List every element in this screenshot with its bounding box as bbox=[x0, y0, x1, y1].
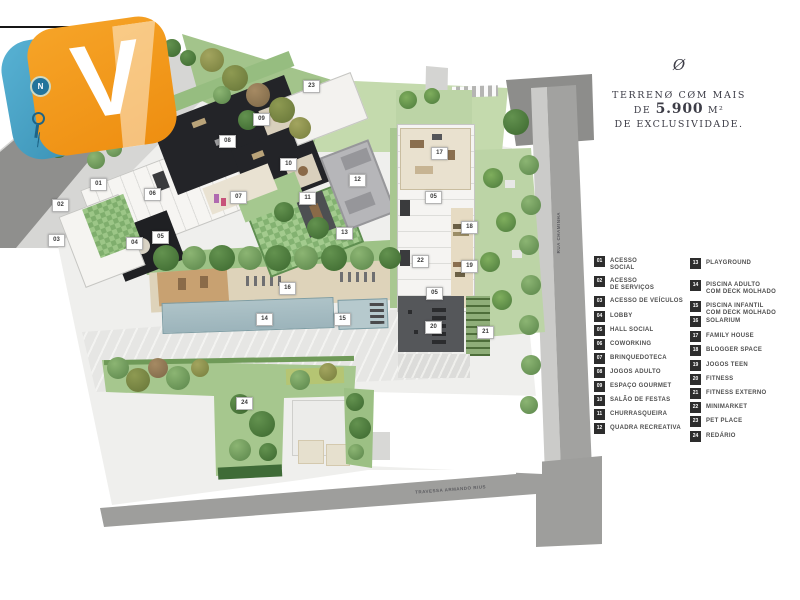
legend-item-07: 07BRINQUEDOTECA bbox=[594, 353, 686, 364]
legend-item-24: 24REDÁRIO bbox=[690, 431, 782, 442]
map-marker-09: 09 bbox=[253, 113, 270, 126]
family-house-furniture bbox=[415, 166, 433, 174]
building-core bbox=[400, 250, 410, 266]
tree bbox=[213, 86, 231, 104]
tree bbox=[519, 235, 539, 255]
legend-label: BRINQUEDOTECA bbox=[610, 353, 667, 362]
tree bbox=[269, 97, 295, 123]
compass-icon: N bbox=[30, 76, 51, 97]
legend-label: JOGOS ADULTO bbox=[610, 367, 661, 376]
tree bbox=[182, 246, 206, 270]
pool-adult bbox=[162, 297, 335, 334]
legend-label: FITNESS EXTERNO bbox=[706, 388, 767, 397]
map-marker-18: 18 bbox=[461, 221, 478, 234]
map-marker-21: 21 bbox=[477, 326, 494, 339]
palm-tree bbox=[496, 212, 516, 232]
legend-label: SALÃO DE FESTAS bbox=[610, 395, 670, 404]
legend-label: ESPAÇO GOURMET bbox=[610, 381, 671, 390]
tree bbox=[200, 48, 224, 72]
legend-item-17: 17FAMILY HOUSE bbox=[690, 331, 782, 342]
walkway-hatched bbox=[398, 354, 470, 378]
legend-number: 12 bbox=[594, 423, 605, 434]
map-marker-11: 11 bbox=[299, 192, 316, 205]
map-marker-03: 03 bbox=[48, 234, 65, 247]
deck-loungers bbox=[340, 272, 380, 282]
site-plan-page: TRAVESSA ARMANDO RIUS RUA CHAMINHA 01 02… bbox=[0, 0, 800, 600]
legend-label: PISCINA INFANTILCOM DECK MOLHADO bbox=[706, 301, 776, 317]
tree bbox=[246, 83, 270, 107]
map-marker-05c: 05 bbox=[426, 287, 443, 300]
tree bbox=[148, 358, 168, 378]
legend-number: 18 bbox=[690, 345, 701, 356]
tree bbox=[290, 370, 310, 390]
tree bbox=[209, 245, 235, 271]
legend-number: 09 bbox=[594, 381, 605, 392]
fitness-equipment bbox=[408, 310, 412, 314]
legend-item-06: 06COWORKING bbox=[594, 339, 686, 350]
map-marker-05a: 05 bbox=[152, 231, 169, 244]
tree bbox=[520, 396, 538, 414]
tree bbox=[519, 315, 539, 335]
legend-label: HALL SOCIAL bbox=[610, 325, 654, 334]
legend-item-13: 13PLAYGROUND bbox=[690, 258, 782, 269]
legend-number: 21 bbox=[690, 388, 701, 399]
legend-number: 20 bbox=[690, 374, 701, 385]
watermark-logo: V N bbox=[6, 16, 178, 164]
tree bbox=[521, 275, 541, 295]
map-marker-04: 04 bbox=[126, 237, 143, 250]
legend-label: ACESSODE SERVIÇOS bbox=[610, 276, 654, 292]
legend-item-03: 03ACESSO DE VEÍCULOS bbox=[594, 296, 686, 307]
legend-item-11: 11CHURRASQUEIRA bbox=[594, 409, 686, 420]
map-marker-20: 20 bbox=[425, 321, 442, 334]
tree bbox=[348, 444, 364, 460]
tree bbox=[249, 411, 275, 437]
family-house-furniture bbox=[447, 150, 455, 160]
legend-label: ACESSOSOCIAL bbox=[610, 256, 637, 272]
legend-item-02: 02ACESSODE SERVIÇOS bbox=[594, 276, 686, 292]
building-core bbox=[400, 200, 410, 216]
headline-line3: DE EXCLUSIVIDADE. bbox=[598, 118, 760, 131]
street-name-right: RUA CHAMINHA bbox=[556, 212, 561, 253]
tree bbox=[294, 246, 318, 270]
tree bbox=[521, 355, 541, 375]
deck-table bbox=[200, 276, 208, 288]
legend-label: ACESSO DE VEÍCULOS bbox=[610, 296, 683, 305]
tree bbox=[259, 443, 277, 461]
map-marker-16: 16 bbox=[279, 282, 296, 295]
tree bbox=[349, 417, 371, 439]
legend-label: SOLARIUM bbox=[706, 316, 740, 325]
palm-tree bbox=[480, 252, 500, 272]
legend-item-18: 18BLOGGER SPACE bbox=[690, 345, 782, 356]
map-marker-17: 17 bbox=[431, 147, 448, 160]
legend-item-12: 12QUADRA RECREATIVA bbox=[594, 423, 686, 434]
tree bbox=[346, 393, 364, 411]
tree bbox=[265, 245, 291, 271]
logo-letter-v: V bbox=[42, 11, 175, 154]
legend-item-14: 14PISCINA ADULTOCOM DECK MOLHADO bbox=[690, 280, 782, 296]
tree bbox=[166, 366, 190, 390]
headline-area-value: 5.900 bbox=[656, 101, 704, 117]
legend-number: 06 bbox=[594, 339, 605, 350]
legend-number: 07 bbox=[594, 353, 605, 364]
tree bbox=[521, 195, 541, 215]
map-marker-14: 14 bbox=[256, 313, 273, 326]
map-marker-24: 24 bbox=[236, 397, 253, 410]
tree bbox=[180, 50, 196, 66]
legend-label: JOGOS TEEN bbox=[706, 360, 748, 369]
map-marker-08: 08 bbox=[219, 135, 236, 148]
legend-number: 19 bbox=[690, 360, 701, 371]
palm-tree bbox=[492, 290, 512, 310]
tree bbox=[126, 368, 150, 392]
map-marker-01: 01 bbox=[90, 178, 107, 191]
legend-number: 10 bbox=[594, 395, 605, 406]
legend-item-22: 22MINIMARKET bbox=[690, 402, 782, 413]
map-marker-10: 10 bbox=[280, 158, 297, 171]
map-marker-23: 23 bbox=[303, 80, 320, 93]
tree bbox=[319, 363, 337, 381]
tree bbox=[519, 155, 539, 175]
legend-number: 01 bbox=[594, 256, 605, 267]
headline: Ø TERRENØ CØM MAIS DE 5.900 M² DE EXCLUS… bbox=[598, 58, 760, 131]
legend-item-15: 15PISCINA INFANTILCOM DECK MOLHADO bbox=[690, 301, 782, 317]
headline-line2: DE 5.900 M² bbox=[598, 102, 760, 118]
lawn-path-square bbox=[505, 180, 515, 188]
legend-number: 15 bbox=[690, 301, 701, 312]
deck-table bbox=[178, 278, 186, 290]
pool-loungers bbox=[370, 302, 385, 324]
kids-furniture bbox=[221, 198, 226, 206]
legend-item-04: 04LOBBY bbox=[594, 311, 686, 322]
map-marker-06: 06 bbox=[144, 188, 161, 201]
legend-label: QUADRA RECREATIVA bbox=[610, 423, 681, 432]
legend-label: MINIMARKET bbox=[706, 402, 747, 411]
legend-number: 23 bbox=[690, 416, 701, 427]
legend-item-23: 23PET PLACE bbox=[690, 416, 782, 427]
tree bbox=[321, 245, 347, 271]
map-marker-02: 02 bbox=[52, 199, 69, 212]
legend-item-09: 09ESPAÇO GOURMET bbox=[594, 381, 686, 392]
legend-label: REDÁRIO bbox=[706, 431, 736, 440]
legend-label: FITNESS bbox=[706, 374, 733, 383]
map-marker-07: 07 bbox=[230, 191, 247, 204]
legend-number: 24 bbox=[690, 431, 701, 442]
service-building bbox=[298, 440, 324, 464]
legend-item-08: 08JOGOS ADULTO bbox=[594, 367, 686, 378]
legend-label: PLAYGROUND bbox=[706, 258, 751, 267]
legend-number: 17 bbox=[690, 331, 701, 342]
party-table bbox=[298, 166, 308, 176]
legend-number: 03 bbox=[594, 296, 605, 307]
legend-item-21: 21FITNESS EXTERNO bbox=[690, 388, 782, 399]
legend-item-20: 20FITNESS bbox=[690, 374, 782, 385]
legend-number: 05 bbox=[594, 325, 605, 336]
legend-label: LOBBY bbox=[610, 311, 633, 320]
tree bbox=[229, 439, 251, 461]
kids-furniture bbox=[214, 194, 219, 203]
slashed-o-ornament: Ø bbox=[598, 58, 760, 73]
fitness-equipment bbox=[414, 330, 418, 334]
palm-tree bbox=[483, 168, 503, 188]
legend-label: CHURRASQUEIRA bbox=[610, 409, 667, 418]
tree bbox=[289, 117, 311, 139]
palm-tree bbox=[399, 91, 417, 109]
legend-label: FAMILY HOUSE bbox=[706, 331, 754, 340]
legend-item-05: 05HALL SOCIAL bbox=[594, 325, 686, 336]
legend-number: 02 bbox=[594, 276, 605, 287]
family-house-furniture bbox=[410, 140, 424, 148]
tree bbox=[153, 245, 179, 271]
legend-number: 11 bbox=[594, 409, 605, 420]
legend-number: 04 bbox=[594, 311, 605, 322]
legend-item-16: 16SOLARIUM bbox=[690, 316, 782, 327]
legend-label: BLOGGER SPACE bbox=[706, 345, 762, 354]
map-marker-22: 22 bbox=[412, 255, 429, 268]
lawn-strip-left-of-slab bbox=[390, 128, 397, 308]
map-marker-13: 13 bbox=[336, 227, 353, 240]
legend-label: PET PLACE bbox=[706, 416, 742, 425]
legend-number: 08 bbox=[594, 367, 605, 378]
legend-label: COWORKING bbox=[610, 339, 651, 348]
legend-item-01: 01ACESSOSOCIAL bbox=[594, 256, 686, 272]
palm-tree bbox=[424, 88, 440, 104]
legend-item-19: 19JOGOS TEEN bbox=[690, 360, 782, 371]
map-marker-12: 12 bbox=[349, 174, 366, 187]
map-marker-19: 19 bbox=[461, 260, 478, 273]
tree bbox=[350, 246, 374, 270]
headline-area-unit: M² bbox=[708, 105, 724, 116]
legend-label: PISCINA ADULTOCOM DECK MOLHADO bbox=[706, 280, 776, 296]
family-house-furniture bbox=[432, 134, 442, 140]
tree bbox=[379, 247, 401, 269]
legend-number: 22 bbox=[690, 402, 701, 413]
map-marker-15: 15 bbox=[334, 313, 351, 326]
map-marker-05b: 05 bbox=[425, 191, 442, 204]
legend-number: 14 bbox=[690, 280, 701, 291]
tree bbox=[503, 109, 529, 135]
headline-de: DE bbox=[634, 105, 651, 116]
legend-number: 16 bbox=[690, 316, 701, 327]
tree bbox=[307, 217, 329, 239]
tree bbox=[238, 246, 262, 270]
tree bbox=[274, 202, 294, 222]
legend-number: 13 bbox=[690, 258, 701, 269]
tree bbox=[191, 359, 209, 377]
legend-item-10: 10SALÃO DE FESTAS bbox=[594, 395, 686, 406]
